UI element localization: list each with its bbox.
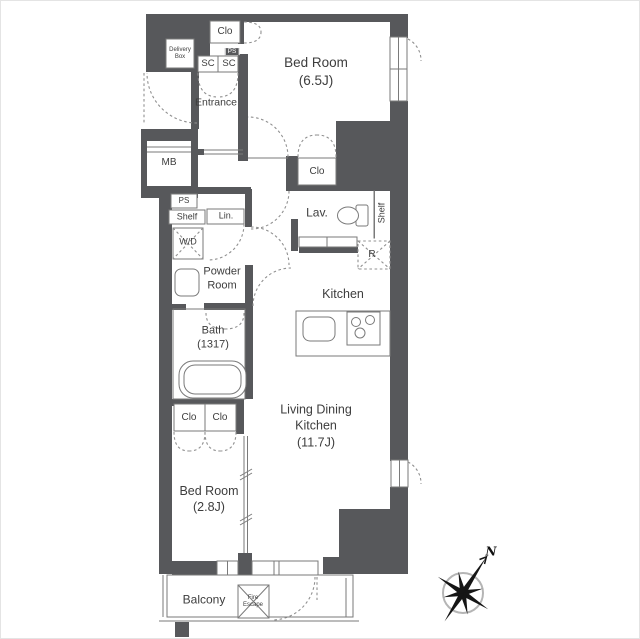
ldk-window-arc <box>408 462 421 484</box>
shoe-closet-doors <box>198 73 238 97</box>
entrance-label: Entrance <box>195 96 237 109</box>
entrance-step <box>204 150 243 154</box>
ldk-side-window <box>391 460 408 487</box>
closet-bottom-left-label: Clo <box>181 412 196 425</box>
counter-shelf <box>327 237 357 247</box>
powder-room-label: Powder Room <box>203 265 240 293</box>
ldk-door-arc <box>253 268 291 306</box>
washbasin-icon <box>175 269 199 296</box>
closet-bottom-right-label: Clo <box>212 412 227 425</box>
closet-top-label: Clo <box>217 26 232 39</box>
linen-label: Lin. <box>219 210 234 221</box>
shoe-closet-right-label: SC <box>222 58 235 70</box>
pipe-space-label: PS <box>179 196 190 206</box>
bedroom1-window-arc <box>408 39 421 61</box>
kitchen-sink-icon <box>303 317 335 341</box>
washer-dryer-label: W/D <box>179 236 197 247</box>
fire-escape-label: Fire Escape <box>243 595 263 609</box>
ldk-label: Living Dining Kitchen (11.7J) <box>280 402 352 451</box>
shelf-right-label: Shelf <box>376 203 387 224</box>
compass-rose <box>438 557 488 622</box>
counter-shelf <box>299 237 327 247</box>
shelf-right-partition <box>374 191 375 238</box>
entrance-door-arc <box>147 73 197 123</box>
kitchen-label: Kitchen <box>322 287 364 303</box>
sliding-partition <box>240 436 252 553</box>
pipe-space-badge: PS <box>225 47 240 57</box>
powder-door-arc <box>251 227 289 265</box>
kitchen-counter <box>296 311 390 356</box>
bedroom2-balcony-window <box>217 561 238 575</box>
bedroom1-door-arc <box>248 117 288 157</box>
toilet-icon <box>338 205 369 226</box>
closet-top-doors <box>244 22 261 43</box>
bedroom1-label: Bed Room (6.5J) <box>284 54 348 90</box>
closet-mid-label: Clo <box>309 166 324 179</box>
lavatory-label: Lav. <box>306 206 328 221</box>
shoe-closet-left-label: SC <box>201 58 214 70</box>
meter-box-label: MB <box>162 157 177 170</box>
ldk-balcony-window <box>252 561 318 575</box>
bedroom2-label: Bed Room (2.8J) <box>179 483 238 516</box>
balcony-door-arc <box>272 577 317 620</box>
stove-icon <box>347 312 380 345</box>
bath-label: Bath (1317) <box>197 324 229 352</box>
bedroom1-window <box>390 37 407 101</box>
balcony-label: Balcony <box>183 593 226 608</box>
delivery-box-label: Delivery Box <box>169 47 191 61</box>
closet-mid-doors <box>298 135 336 157</box>
shelf-left-label: Shelf <box>177 211 198 222</box>
meter-box-louvers <box>147 147 191 152</box>
compass-north-label: N <box>486 545 497 560</box>
floorplan-drawing <box>1 1 640 639</box>
floorplan-canvas: Delivery Box Clo PS SC SC Entrance Bed R… <box>0 0 640 639</box>
closet-bottom-doors <box>174 432 236 451</box>
hall-door-arc <box>251 191 289 229</box>
refrigerator-label: R <box>368 249 375 262</box>
linen-door-arc <box>208 224 244 260</box>
bathtub-icon <box>173 309 246 399</box>
